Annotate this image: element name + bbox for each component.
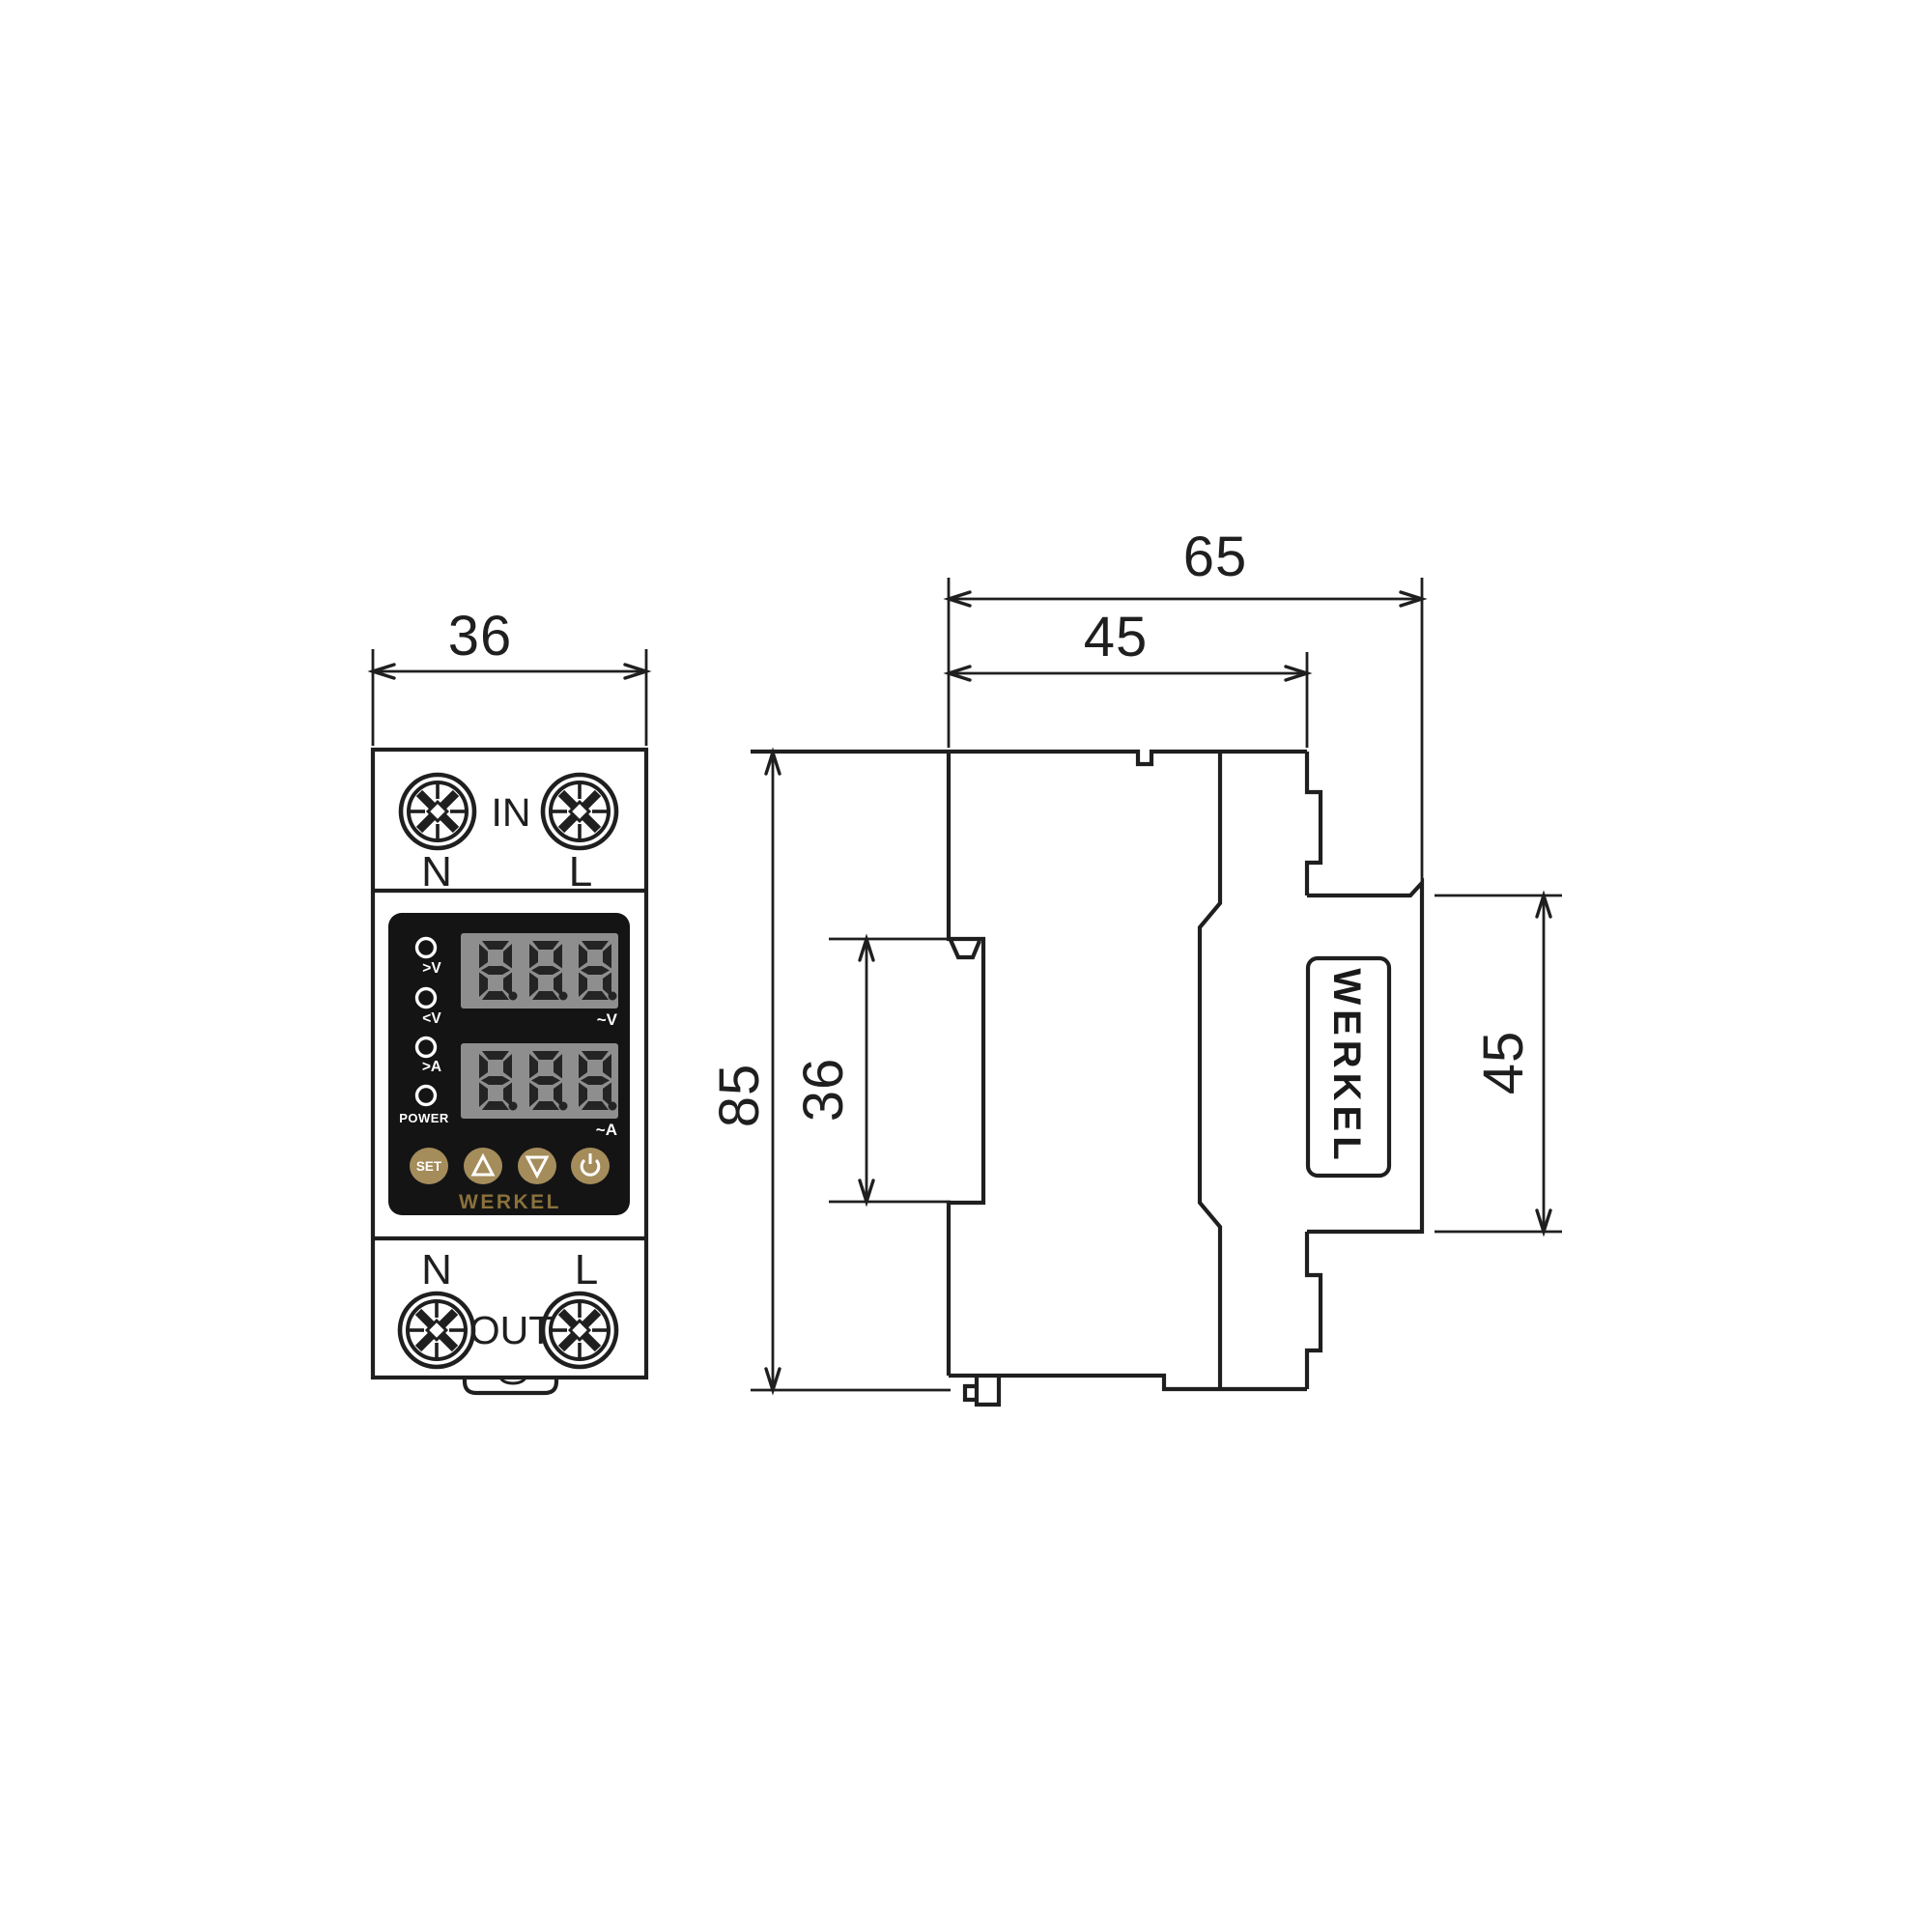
led-undervoltage-label: <V	[422, 1010, 441, 1027]
terminal-n-top-label: N	[421, 848, 452, 895]
in-label: IN	[492, 790, 531, 835]
up-button	[464, 1148, 502, 1184]
screw-icon	[543, 1293, 616, 1367]
dimension-front-width-value: 36	[448, 605, 513, 668]
led-overvoltage-icon	[417, 939, 436, 957]
power-button	[571, 1148, 610, 1184]
terminal-l-top-label: L	[569, 848, 592, 895]
dimension-front-block-height: 45	[1435, 895, 1562, 1232]
side-brand-label: WERKEL	[1325, 968, 1368, 1164]
dimension-body-depth-value: 45	[1084, 606, 1149, 668]
dimension-body-depth: 45	[949, 606, 1307, 748]
side-right-lower-edge	[1307, 1232, 1321, 1389]
dimension-drawing: IN N L >V <V >A POWER ~V	[0, 0, 1932, 1932]
screw-icon	[401, 775, 474, 848]
dimension-front-width: 36	[373, 605, 646, 746]
led-undervoltage-icon	[417, 989, 436, 1008]
down-button	[518, 1148, 556, 1184]
terminal-n-bottom-label: N	[421, 1246, 452, 1293]
led-power-icon	[417, 1087, 436, 1105]
side-top-edge	[751, 752, 1307, 764]
voltage-seven-segment-display	[461, 933, 618, 1009]
set-button-label: SET	[416, 1159, 442, 1174]
din-release-clip	[977, 1376, 999, 1405]
front-view: IN N L >V <V >A POWER ~V	[373, 750, 646, 1393]
dimension-front-block-height-value: 45	[1472, 1031, 1535, 1095]
side-right-upper-edge	[1307, 752, 1321, 895]
terminal-l-bottom-label: L	[575, 1246, 598, 1293]
dimension-rail-section-value: 36	[792, 1058, 855, 1122]
led-overvoltage-label: >V	[422, 960, 441, 977]
current-unit-label: ~A	[596, 1121, 617, 1139]
set-button: SET	[410, 1148, 448, 1184]
led-overcurrent-icon	[417, 1038, 436, 1057]
drawing-canvas: IN N L >V <V >A POWER ~V	[0, 0, 1932, 1932]
current-seven-segment-display	[461, 1043, 618, 1119]
led-power-label: POWER	[399, 1111, 449, 1125]
led-overcurrent-label: >A	[422, 1059, 441, 1075]
front-brand-label: WERKEL	[459, 1191, 561, 1213]
side-left-edge	[949, 752, 983, 1376]
side-bottom-edge	[949, 1376, 1307, 1389]
internal-seam-line	[1200, 752, 1220, 1389]
dimension-total-depth: 65	[949, 526, 1422, 882]
dimension-rail-section: 36	[792, 939, 951, 1202]
screw-icon	[543, 775, 616, 848]
dimension-total-depth-value: 65	[1183, 526, 1248, 588]
din-clip-tab	[465, 1378, 556, 1393]
screw-icon	[400, 1293, 473, 1367]
voltage-unit-label: ~V	[597, 1010, 618, 1029]
dimension-height-value: 85	[708, 1064, 771, 1128]
rail-catch-notch	[951, 940, 980, 957]
out-label: OUT	[469, 1308, 554, 1352]
